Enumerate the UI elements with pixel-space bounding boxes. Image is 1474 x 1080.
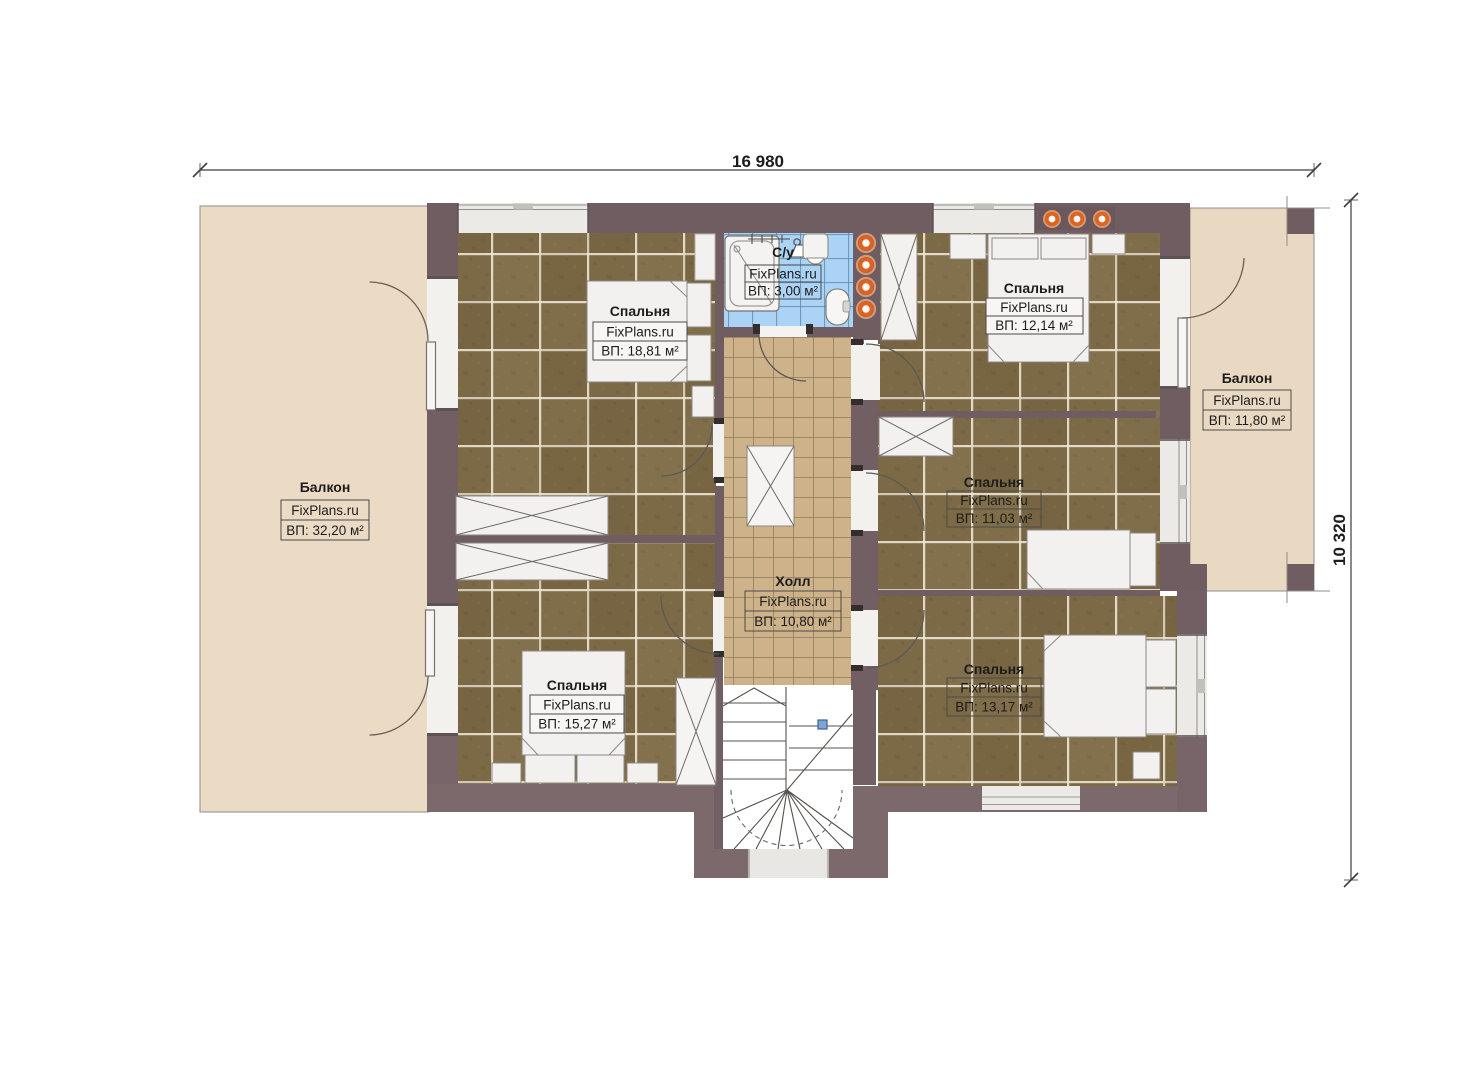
svg-text:С/у: С/у: [772, 244, 794, 260]
svg-text:10 320: 10 320: [1330, 514, 1349, 566]
svg-text:Спальня: Спальня: [964, 474, 1024, 490]
svg-text:ВП: 11,80 м²: ВП: 11,80 м²: [1209, 413, 1286, 428]
svg-text:ВП: 12,14 м²: ВП: 12,14 м²: [995, 318, 1073, 333]
svg-text:FixPlans.ru: FixPlans.ru: [759, 594, 827, 609]
svg-text:ВП: 3,00 м²: ВП: 3,00 м²: [748, 284, 819, 299]
svg-text:FixPlans.ru: FixPlans.ru: [606, 325, 674, 340]
svg-text:Спальня: Спальня: [547, 677, 607, 693]
svg-text:Балкон: Балкон: [300, 479, 351, 495]
svg-text:Спальня: Спальня: [964, 661, 1024, 677]
svg-text:Холл: Холл: [775, 573, 810, 589]
svg-text:Балкон: Балкон: [1222, 370, 1273, 386]
svg-text:ВП: 32,20 м²: ВП: 32,20 м²: [286, 523, 364, 538]
svg-text:ВП: 13,17 м²: ВП: 13,17 м²: [955, 700, 1033, 715]
svg-text:FixPlans.ru: FixPlans.ru: [543, 698, 611, 713]
svg-text:FixPlans.ru: FixPlans.ru: [1213, 393, 1281, 408]
svg-text:ВП: 18,81 м²: ВП: 18,81 м²: [601, 344, 679, 359]
svg-text:FixPlans.ru: FixPlans.ru: [1000, 300, 1068, 315]
svg-text:ВП: 11,03 м²: ВП: 11,03 м²: [956, 511, 1033, 526]
svg-text:Спальня: Спальня: [1004, 280, 1064, 296]
svg-text:FixPlans.ru: FixPlans.ru: [960, 493, 1028, 508]
svg-text:ВП: 10,80 м²: ВП: 10,80 м²: [754, 614, 832, 629]
svg-text:FixPlans.ru: FixPlans.ru: [749, 267, 817, 282]
svg-text:ВП: 15,27 м²: ВП: 15,27 м²: [538, 717, 616, 732]
svg-text:16 980: 16 980: [732, 152, 784, 171]
svg-text:Спальня: Спальня: [610, 303, 670, 319]
svg-text:FixPlans.ru: FixPlans.ru: [960, 681, 1028, 696]
svg-text:FixPlans.ru: FixPlans.ru: [291, 503, 359, 518]
